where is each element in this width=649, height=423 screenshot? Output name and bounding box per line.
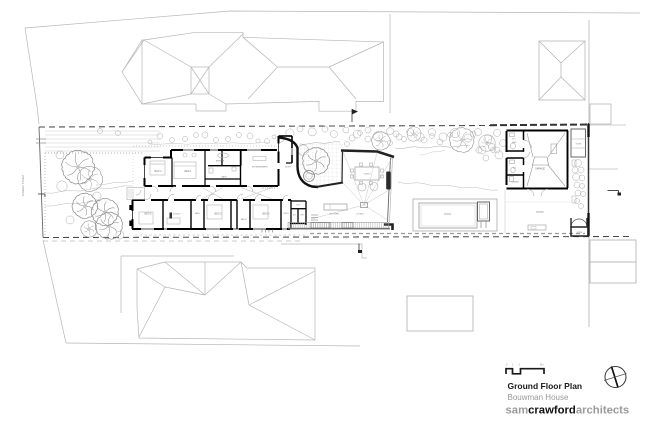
- svg-text:Bouwman House: Bouwman House: [508, 393, 569, 402]
- svg-text:5m: 5m: [540, 364, 543, 367]
- svg-text:PATIO: PATIO: [536, 210, 543, 214]
- svg-text:POOL: POOL: [444, 212, 452, 216]
- svg-text:GARAGE: GARAGE: [535, 168, 545, 171]
- svg-text:samcrawfordarchitects: samcrawfordarchitects: [506, 405, 630, 417]
- svg-text:BED 2: BED 2: [215, 213, 223, 216]
- svg-text:BED 5: BED 5: [145, 213, 153, 216]
- svg-text:Ground Floor Plan: Ground Floor Plan: [508, 381, 583, 391]
- svg-text:ENTERTAINMENT: ENTERTAINMENT: [252, 166, 269, 169]
- svg-text:BATH: BATH: [195, 212, 200, 215]
- svg-text:STUDY: STUDY: [173, 214, 181, 216]
- svg-text:BATH 2: BATH 2: [241, 218, 247, 221]
- svg-text:ENTRY: ENTRY: [285, 167, 292, 169]
- svg-text:BED 4: BED 4: [155, 170, 163, 173]
- svg-text:BED 3: BED 3: [263, 213, 271, 216]
- svg-text:BED 1: BED 1: [185, 170, 193, 173]
- svg-text:LIVING: LIVING: [356, 214, 363, 216]
- svg-text:EDWARD STREET: EDWARD STREET: [22, 174, 25, 196]
- svg-text:BATH: BATH: [222, 176, 228, 179]
- svg-text:ENSUITE: ENSUITE: [216, 161, 225, 163]
- svg-text:KITCHEN: KITCHEN: [329, 214, 339, 216]
- svg-text:DINING: DINING: [364, 174, 371, 176]
- svg-text:LNDRY: LNDRY: [283, 213, 290, 215]
- svg-text:STORE: STORE: [577, 232, 584, 234]
- svg-text:STORE: STORE: [576, 144, 583, 146]
